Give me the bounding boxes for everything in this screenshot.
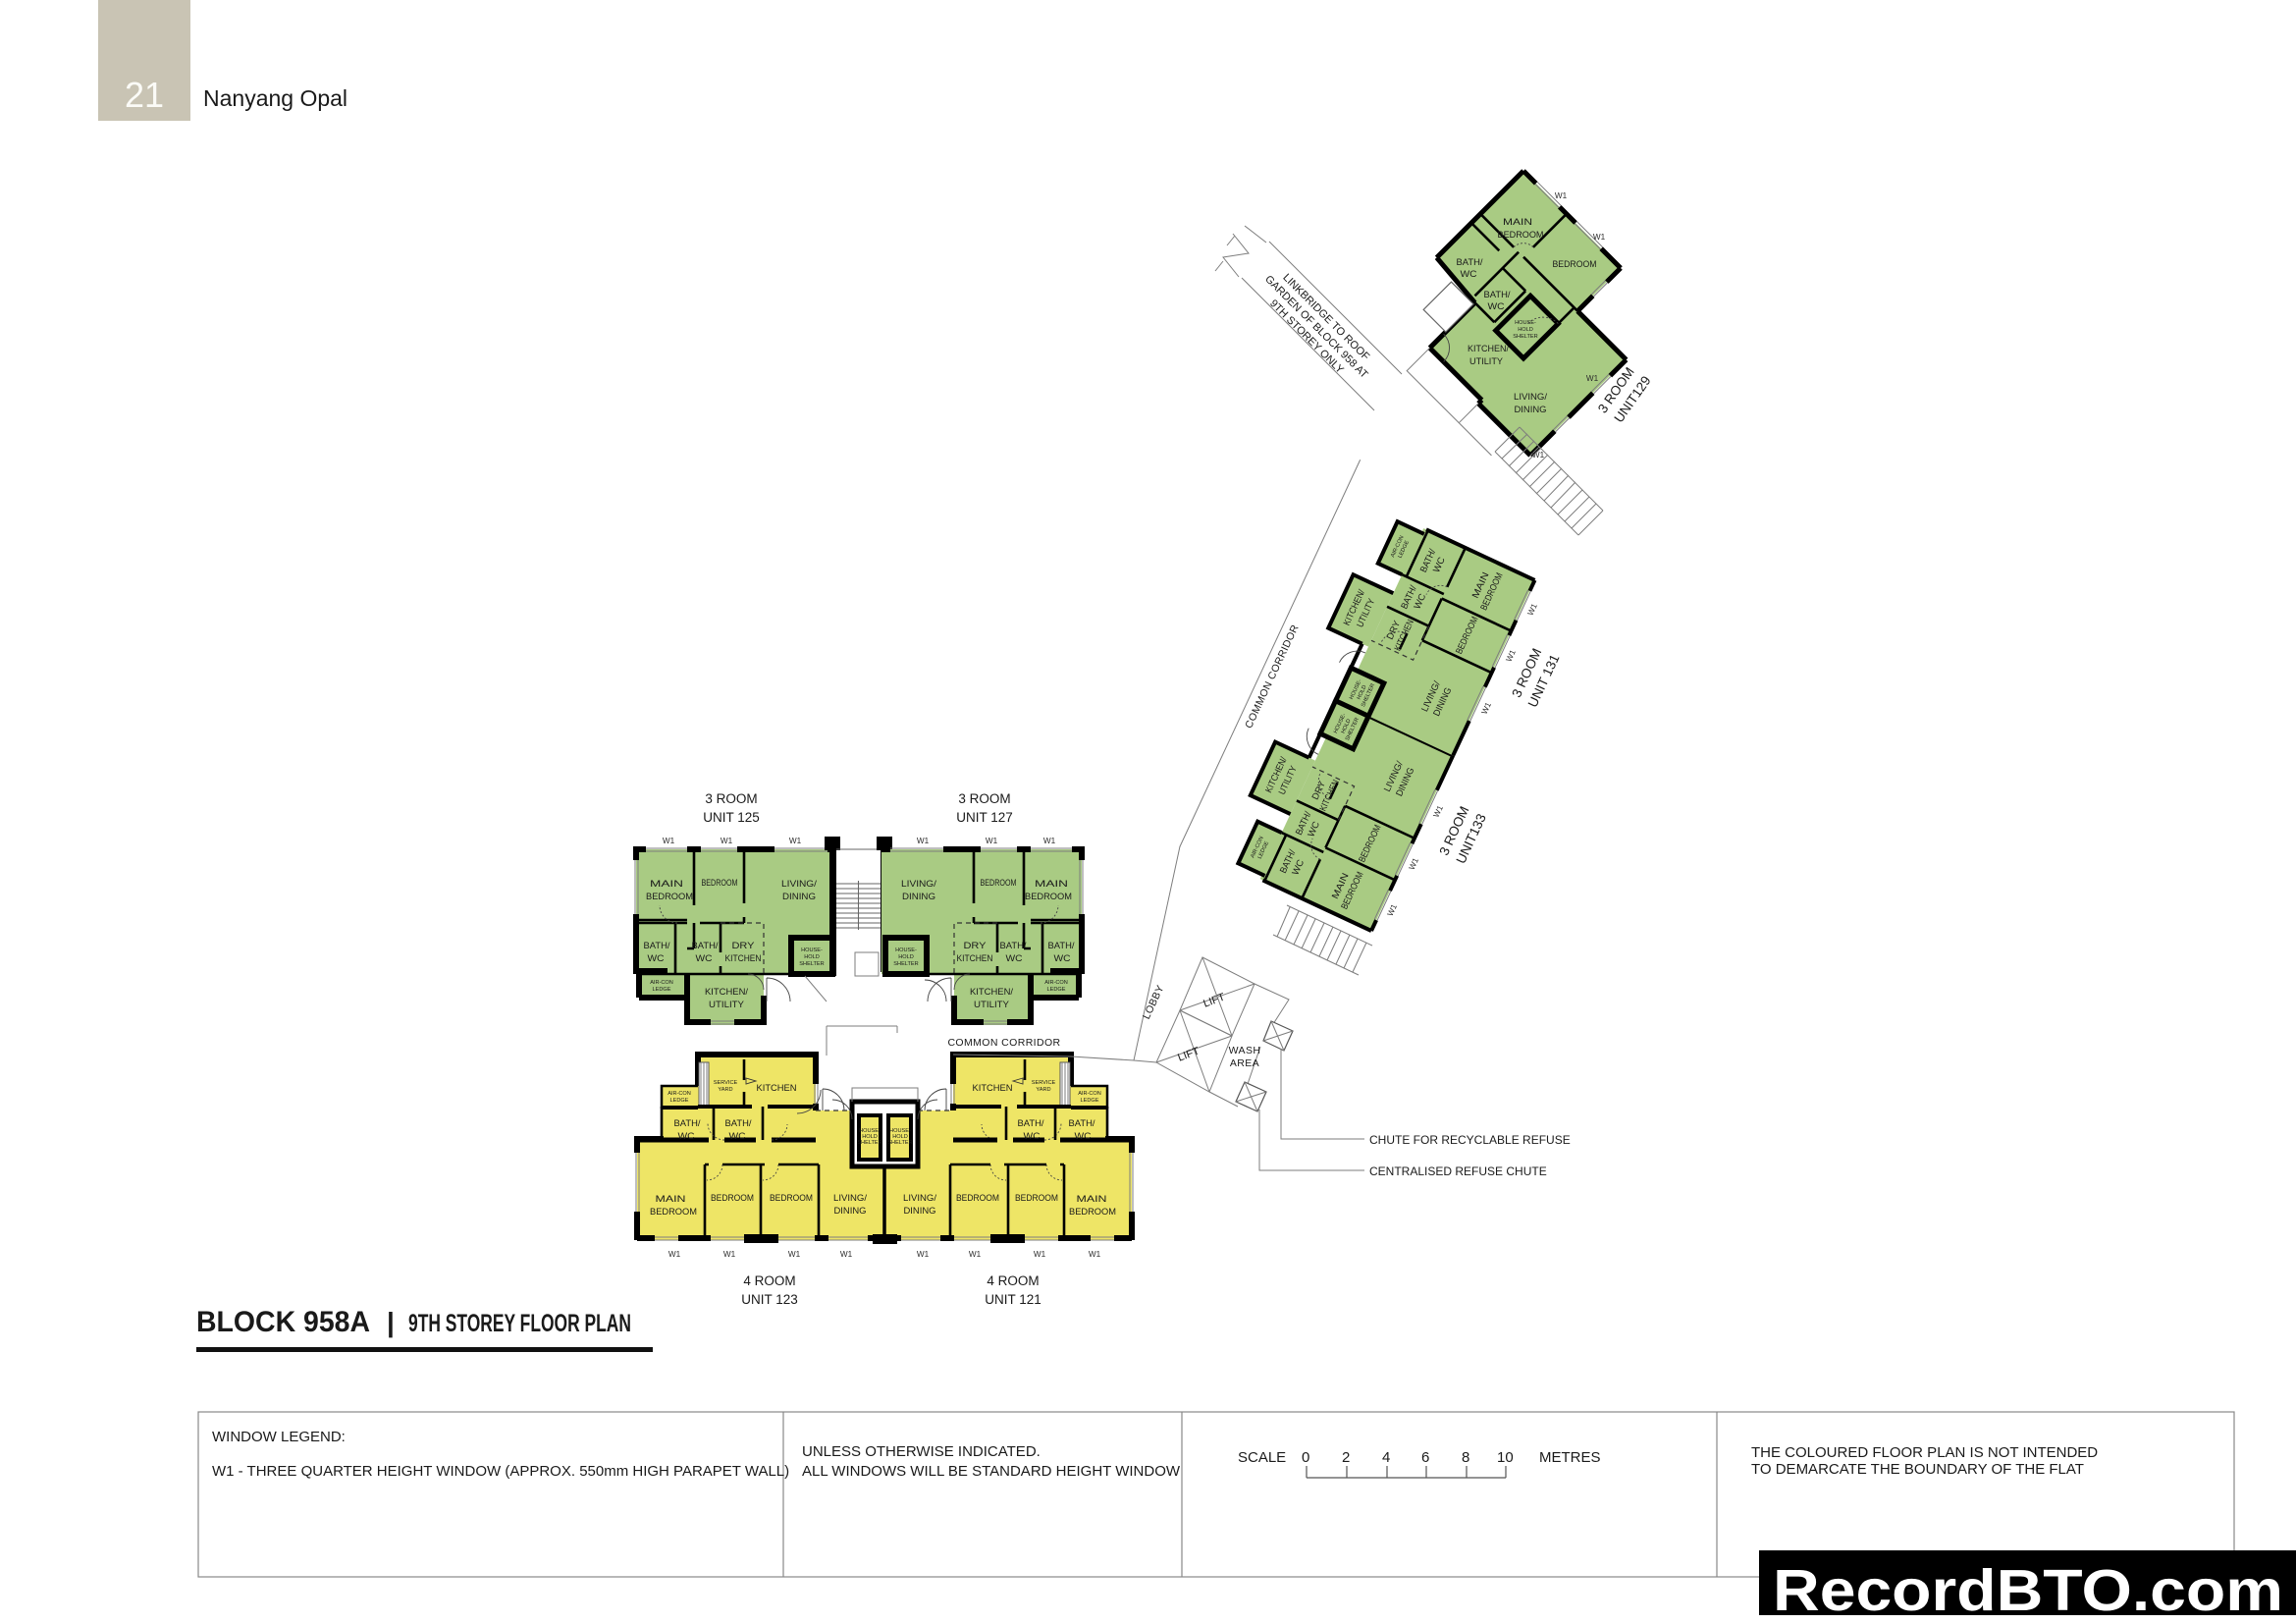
svg-text:BEDROOM: BEDROOM (956, 1193, 999, 1204)
svg-text:HOLD: HOLD (1518, 327, 1533, 333)
svg-text:W1: W1 (663, 837, 675, 845)
svg-text:MAIN: MAIN (650, 879, 683, 890)
svg-text:W1: W1 (917, 837, 930, 845)
svg-text:LIVING/: LIVING/ (901, 879, 936, 890)
svg-text:W1: W1 (789, 837, 802, 845)
svg-text:BATH/: BATH/ (674, 1118, 701, 1129)
svg-text:DRY: DRY (732, 941, 756, 951)
svg-text:YARD: YARD (1036, 1087, 1050, 1093)
svg-text:CENTRALISED REFUSE CHUTE: CENTRALISED REFUSE CHUTE (1369, 1164, 1547, 1178)
svg-text:WC: WC (1024, 1131, 1041, 1142)
svg-text:LIVING/: LIVING/ (833, 1193, 867, 1204)
svg-text:10: 10 (1497, 1449, 1514, 1466)
svg-text:KITCHEN/: KITCHEN/ (705, 987, 748, 998)
svg-text:W1: W1 (840, 1250, 853, 1259)
svg-text:TO DEMARCATE THE BOUNDARY OF T: TO DEMARCATE THE BOUNDARY OF THE FLAT (1751, 1461, 2084, 1478)
svg-text:3 ROOM: 3 ROOM (958, 791, 1010, 806)
svg-text:BLOCK 958A: BLOCK 958A (196, 1306, 370, 1338)
svg-text:WC: WC (648, 953, 665, 964)
svg-text:BATH/: BATH/ (1484, 290, 1511, 300)
svg-text:WC: WC (1488, 301, 1505, 312)
svg-text:BEDROOM: BEDROOM (1015, 1193, 1058, 1204)
svg-text:CHUTE FOR RECYCLABLE REFUSE: CHUTE FOR RECYCLABLE REFUSE (1369, 1133, 1571, 1147)
svg-text:UNIT 121: UNIT 121 (985, 1292, 1041, 1307)
svg-text:ALL WINDOWS WILL BE STANDARD H: ALL WINDOWS WILL BE STANDARD HEIGHT WIND… (802, 1463, 1181, 1480)
svg-text:LEDGE: LEDGE (670, 1098, 689, 1104)
svg-text:BEDROOM: BEDROOM (770, 1193, 813, 1204)
svg-text:BEDROOM: BEDROOM (650, 1207, 697, 1218)
svg-text:BEDROOM: BEDROOM (981, 878, 1017, 889)
svg-text:W1: W1 (721, 837, 733, 845)
svg-text:METRES: METRES (1539, 1449, 1601, 1466)
svg-text:0: 0 (1302, 1449, 1309, 1466)
svg-text:BEDROOM: BEDROOM (1553, 259, 1597, 270)
svg-text:WINDOW LEGEND:: WINDOW LEGEND: (212, 1429, 346, 1445)
svg-text:SHELTER: SHELTER (799, 961, 824, 967)
svg-text:HOUSE-: HOUSE- (895, 947, 917, 953)
svg-text:AIR-CON: AIR-CON (1044, 980, 1068, 986)
svg-text:4 ROOM: 4 ROOM (743, 1273, 795, 1288)
svg-text:SHELTER: SHELTER (1513, 334, 1537, 340)
svg-text:YARD: YARD (718, 1087, 732, 1093)
svg-text:4 ROOM: 4 ROOM (987, 1273, 1039, 1288)
svg-text:WC: WC (1006, 953, 1023, 964)
svg-text:BEDROOM: BEDROOM (1069, 1207, 1116, 1218)
svg-text:W1: W1 (917, 1250, 930, 1259)
svg-text:BEDROOM: BEDROOM (702, 878, 738, 889)
svg-text:SERVICE: SERVICE (1032, 1080, 1056, 1086)
svg-text:MAIN: MAIN (1503, 217, 1532, 228)
svg-text:UNIT 123: UNIT 123 (741, 1292, 798, 1307)
svg-text:AREA: AREA (1230, 1057, 1259, 1069)
svg-text:RecordBTO.com: RecordBTO.com (1773, 1558, 2283, 1623)
svg-text:SHELTER: SHELTER (887, 1140, 912, 1146)
svg-text:SHELTER: SHELTER (893, 961, 918, 967)
svg-text:WASH: WASH (1229, 1045, 1261, 1056)
svg-text:2: 2 (1342, 1449, 1350, 1466)
svg-text:WC: WC (696, 953, 713, 964)
svg-text:BATH/: BATH/ (1048, 941, 1075, 951)
svg-text:UNIT 125: UNIT 125 (703, 810, 760, 825)
svg-text:WC: WC (1075, 1131, 1092, 1142)
svg-text:LEDGE: LEDGE (1047, 987, 1066, 993)
svg-text:KITCHEN: KITCHEN (957, 953, 993, 964)
svg-text:HOLD: HOLD (898, 954, 914, 960)
svg-text:AIR-CON: AIR-CON (1078, 1091, 1101, 1097)
svg-text:LEDGE: LEDGE (1081, 1098, 1099, 1104)
svg-text:KITCHEN/: KITCHEN/ (1468, 344, 1509, 354)
svg-text:SERVICE: SERVICE (714, 1080, 738, 1086)
svg-text:WC: WC (729, 1131, 746, 1142)
svg-text:MAIN: MAIN (656, 1194, 686, 1205)
svg-text:|: | (387, 1307, 395, 1337)
svg-text:W1: W1 (1034, 1250, 1046, 1259)
svg-text:W1: W1 (788, 1250, 801, 1259)
svg-text:BEDROOM: BEDROOM (711, 1193, 754, 1204)
svg-text:BATH/: BATH/ (644, 941, 670, 951)
svg-text:BEDROOM: BEDROOM (1498, 230, 1544, 241)
svg-text:W1: W1 (1089, 1250, 1101, 1259)
svg-text:UTILITY: UTILITY (974, 1000, 1010, 1010)
svg-text:KITCHEN/: KITCHEN/ (970, 987, 1013, 998)
svg-text:DINING: DINING (902, 892, 935, 902)
svg-text:W1: W1 (969, 1250, 982, 1259)
svg-text:Nanyang Opal: Nanyang Opal (203, 85, 347, 111)
svg-text:W1: W1 (1043, 837, 1056, 845)
svg-text:W1: W1 (986, 837, 998, 845)
svg-text:6: 6 (1421, 1449, 1429, 1466)
svg-text:SHELTER: SHELTER (857, 1140, 881, 1146)
svg-text:UNIT 127: UNIT 127 (956, 810, 1013, 825)
svg-text:W1: W1 (1593, 233, 1606, 242)
svg-text:LIVING/: LIVING/ (1514, 392, 1547, 403)
svg-text:UTILITY: UTILITY (1469, 356, 1504, 367)
svg-text:DRY: DRY (964, 941, 988, 951)
svg-text:DINING: DINING (1515, 405, 1547, 415)
svg-text:DINING: DINING (782, 892, 816, 902)
svg-text:BATH/: BATH/ (1018, 1118, 1044, 1129)
svg-text:9TH STOREY FLOOR PLAN: 9TH STOREY FLOOR PLAN (408, 1310, 631, 1337)
svg-text:BATH/: BATH/ (725, 1118, 752, 1129)
svg-text:W1: W1 (1555, 191, 1568, 200)
svg-text:KITCHEN: KITCHEN (757, 1083, 797, 1094)
svg-text:BATH/: BATH/ (1457, 257, 1483, 268)
svg-text:WC: WC (678, 1131, 695, 1142)
svg-text:4: 4 (1382, 1449, 1390, 1466)
svg-text:W1: W1 (1586, 374, 1599, 383)
svg-text:LIVING/: LIVING/ (903, 1193, 936, 1204)
svg-text:SCALE: SCALE (1238, 1449, 1286, 1466)
svg-text:W1: W1 (668, 1250, 681, 1259)
svg-text:3 ROOM: 3 ROOM (705, 791, 757, 806)
svg-text:AIR-CON: AIR-CON (650, 980, 673, 986)
svg-text:HOUSE-: HOUSE- (1515, 320, 1536, 326)
svg-text:LIVING/: LIVING/ (781, 879, 817, 890)
svg-text:MAIN: MAIN (1077, 1194, 1107, 1205)
svg-text:HOUSE-: HOUSE- (801, 947, 823, 953)
svg-text:THE COLOURED FLOOR PLAN IS NOT: THE COLOURED FLOOR PLAN IS NOT INTENDED (1751, 1444, 2098, 1461)
svg-text:UNLESS OTHERWISE INDICATED.: UNLESS OTHERWISE INDICATED. (802, 1443, 1041, 1460)
svg-text:BEDROOM: BEDROOM (1025, 892, 1072, 902)
svg-text:BATH/: BATH/ (1000, 941, 1027, 951)
svg-text:HOLD: HOLD (804, 954, 820, 960)
svg-text:DINING: DINING (904, 1206, 936, 1217)
svg-text:KITCHEN: KITCHEN (725, 953, 762, 964)
svg-text:21: 21 (125, 75, 164, 115)
svg-text:8: 8 (1462, 1449, 1469, 1466)
svg-text:UTILITY: UTILITY (709, 1000, 745, 1010)
svg-text:COMMON CORRIDOR: COMMON CORRIDOR (947, 1037, 1060, 1049)
svg-text:BEDROOM: BEDROOM (646, 892, 693, 902)
svg-text:BATH/: BATH/ (692, 941, 719, 951)
svg-text:WC: WC (1054, 953, 1071, 964)
svg-text:MAIN: MAIN (1035, 879, 1068, 890)
svg-text:WC: WC (1461, 269, 1477, 280)
svg-text:W1 - THREE QUARTER HEIGHT WIND: W1 - THREE QUARTER HEIGHT WINDOW (APPROX… (212, 1463, 789, 1480)
svg-text:W1: W1 (723, 1250, 736, 1259)
svg-text:AIR-CON: AIR-CON (667, 1091, 691, 1097)
svg-text:BATH/: BATH/ (1069, 1118, 1095, 1129)
svg-text:LEDGE: LEDGE (653, 987, 671, 993)
svg-text:KITCHEN: KITCHEN (973, 1083, 1013, 1094)
svg-text:DINING: DINING (834, 1206, 867, 1217)
